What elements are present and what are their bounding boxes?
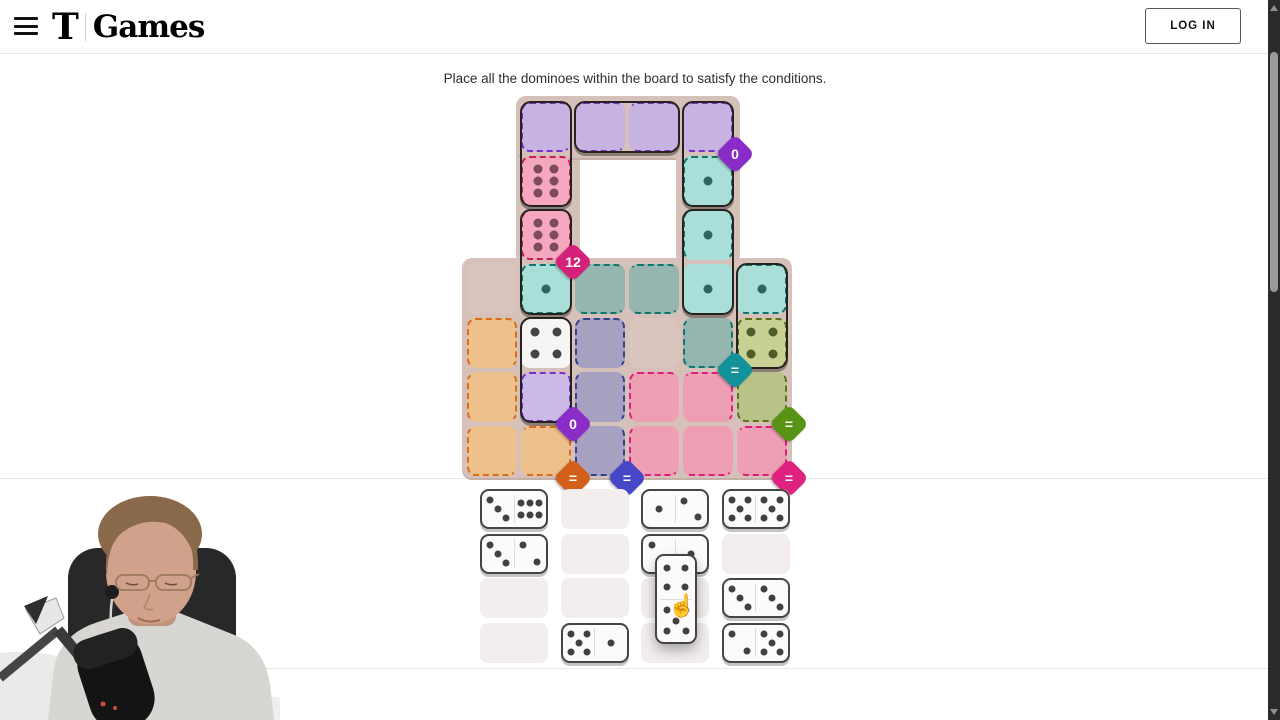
domino-half [563,625,595,661]
domino-half [756,580,788,616]
scrollbar-thumb[interactable] [1270,52,1278,292]
pip [663,628,670,635]
pip [776,648,783,655]
pip [487,541,494,548]
tray-domino[interactable] [480,534,548,574]
mic-light [113,706,117,710]
pip [567,648,574,655]
tray-slot [561,578,629,618]
pip [503,515,510,522]
logo-divider [85,13,86,41]
tray-domino[interactable] [480,489,548,529]
pip [736,595,743,602]
pip [495,506,502,513]
face [106,520,196,624]
domino-half [482,536,514,572]
pip [744,515,751,522]
pip [535,512,542,519]
pip [681,584,688,591]
pip [768,506,775,513]
domino-divider [755,584,756,613]
domino-divider [514,539,515,568]
nyt-games-logo[interactable]: T Games [52,4,204,50]
domino-divider [755,495,756,524]
tray-slot [480,578,548,618]
scroll-down-arrow-icon[interactable] [1270,709,1278,715]
domino-half [756,491,788,527]
domino-half [482,491,514,527]
pip [567,630,574,637]
pip [776,515,783,522]
pip [583,630,590,637]
pip [534,558,541,565]
domino-half [643,491,675,527]
pip [744,604,751,611]
pip [664,564,671,571]
pip [776,630,783,637]
tray-slot [722,534,790,574]
domino-divider [755,628,756,657]
log-in-button[interactable]: LOG IN [1145,8,1241,44]
domino-half [724,580,756,616]
pip [503,559,510,566]
pip [487,497,494,504]
menu-icon[interactable] [14,17,38,36]
domino-divider [514,495,515,524]
domino-half [514,491,546,527]
pip [607,639,614,646]
pip [768,595,775,602]
pip [744,497,751,504]
domino-half [675,491,707,527]
tray-slot [561,489,629,529]
domino-half [724,625,756,661]
tray-domino[interactable] [722,489,790,529]
header: T Games LOG IN [0,0,1268,54]
domino-divider [675,495,676,524]
pip [681,564,688,571]
domino-half [595,625,627,661]
pip [680,497,687,504]
pip [728,497,735,504]
scrollbar[interactable] [1268,0,1280,720]
pip [519,542,526,549]
domino-divider [594,628,595,657]
pip [682,628,689,635]
scroll-up-arrow-icon[interactable] [1270,5,1278,11]
pip [760,648,767,655]
pip [527,499,534,506]
pip [760,497,767,504]
nyt-t-icon: T [52,9,79,45]
tray-domino[interactable] [722,623,790,663]
pip [583,648,590,655]
hand-cursor-icon: ☝ [668,593,695,619]
mic-light [101,702,106,707]
logo-games-text: Games [93,12,205,43]
domino-half [514,536,546,572]
tray-slot [480,623,548,663]
tray-domino[interactable] [561,623,629,663]
pip [518,512,525,519]
pip [743,647,750,654]
pip [495,550,502,557]
pip [776,604,783,611]
pip [656,506,663,513]
tray-slot [561,534,629,574]
pip [729,631,736,638]
pip [768,639,775,646]
domino-half [756,625,788,661]
pip [736,506,743,513]
pip [664,584,671,591]
pip [535,499,542,506]
pip [518,499,525,506]
pip [575,639,582,646]
pip [695,514,702,521]
pip [728,586,735,593]
tray-domino[interactable] [641,489,709,529]
webcam-overlay [0,482,280,720]
pip [648,542,655,549]
pip [760,630,767,637]
pip [728,515,735,522]
pip [527,512,534,519]
pip [760,515,767,522]
tray-domino[interactable] [722,578,790,618]
pip [776,497,783,504]
pip [760,586,767,593]
domino-half [724,491,756,527]
